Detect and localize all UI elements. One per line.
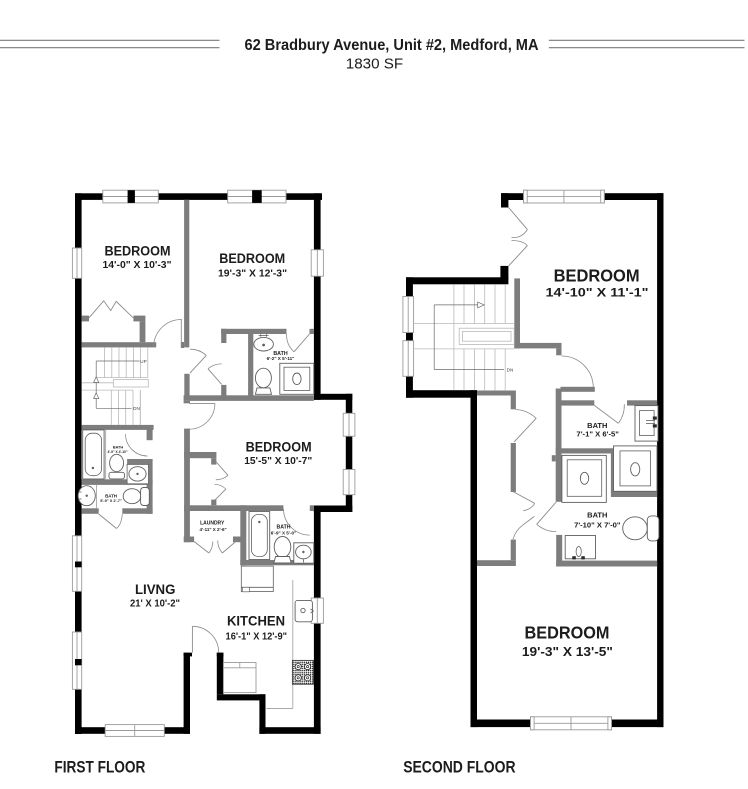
svg-text:1830 SF: 1830 SF bbox=[346, 55, 403, 72]
svg-text:DN: DN bbox=[507, 368, 514, 373]
svg-text:UP: UP bbox=[140, 359, 146, 364]
svg-text:5'-9" X 2'-7": 5'-9" X 2'-7" bbox=[100, 498, 122, 503]
svg-text:BEDROOM: BEDROOM bbox=[105, 244, 171, 260]
svg-text:15'-5" X 10'-7": 15'-5" X 10'-7" bbox=[244, 456, 312, 467]
svg-text:14'-10" X 11'-1": 14'-10" X 11'-1" bbox=[546, 286, 649, 300]
svg-text:7'-10" X 7'-0": 7'-10" X 7'-0" bbox=[574, 522, 620, 529]
svg-text:BATH: BATH bbox=[113, 445, 124, 449]
svg-text:KITCHEN: KITCHEN bbox=[227, 613, 285, 629]
svg-text:16'-1" X 12'-9": 16'-1" X 12'-9" bbox=[226, 632, 288, 643]
svg-text:LAUNDRY: LAUNDRY bbox=[200, 520, 225, 526]
svg-text:19'-3" X 13'-5": 19'-3" X 13'-5" bbox=[522, 644, 613, 659]
svg-text:BATH: BATH bbox=[587, 511, 607, 520]
svg-text:21' X 10'-2": 21' X 10'-2" bbox=[130, 599, 180, 610]
svg-text:6'-9" X 5'-0": 6'-9" X 5'-0" bbox=[271, 531, 296, 536]
svg-text:6'-2" X 5'-11": 6'-2" X 5'-11" bbox=[267, 356, 295, 361]
svg-text:SECOND FLOOR: SECOND FLOOR bbox=[403, 757, 515, 776]
svg-text:BEDROOM: BEDROOM bbox=[246, 440, 312, 456]
svg-text:BATH: BATH bbox=[587, 421, 607, 430]
svg-text:LIVNG: LIVNG bbox=[135, 582, 176, 598]
svg-text:62 Bradbury Avenue, Unit #2, M: 62 Bradbury Avenue, Unit #2, Medford, MA bbox=[245, 37, 539, 54]
svg-text:7'-1" X 6'-5": 7'-1" X 6'-5" bbox=[576, 432, 619, 439]
svg-text:BEDROOM: BEDROOM bbox=[554, 265, 640, 285]
svg-text:19'-3" X 12'-3": 19'-3" X 12'-3" bbox=[218, 268, 287, 279]
svg-text:4'-11" X 2'-6": 4'-11" X 2'-6" bbox=[200, 527, 227, 532]
svg-text:BEDROOM: BEDROOM bbox=[525, 622, 610, 642]
svg-text:4'-9" X 4'-10": 4'-9" X 4'-10" bbox=[107, 450, 128, 454]
svg-text:FIRST FLOOR: FIRST FLOOR bbox=[54, 757, 145, 776]
svg-text:BEDROOM: BEDROOM bbox=[219, 251, 285, 267]
svg-text:DN: DN bbox=[133, 406, 140, 411]
svg-text:14'-0" X 10'-3": 14'-0" X 10'-3" bbox=[103, 260, 172, 271]
